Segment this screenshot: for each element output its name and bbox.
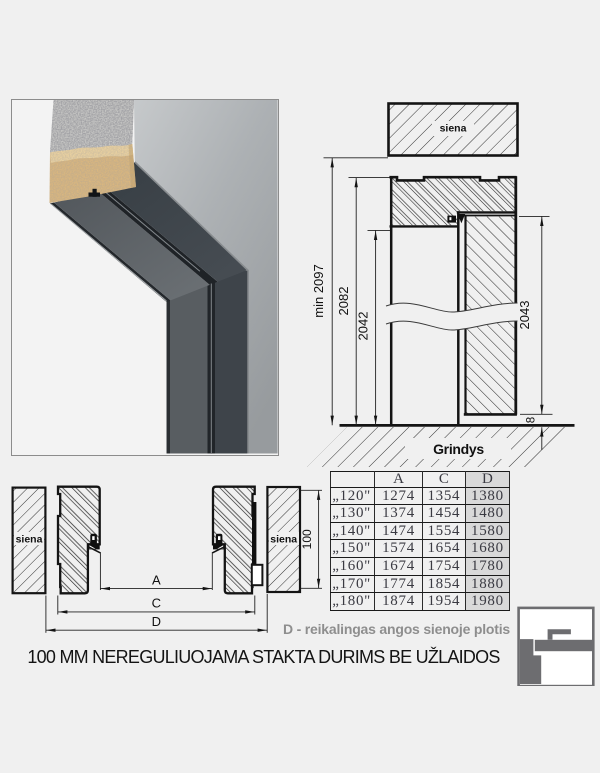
svg-text:C: C — [152, 596, 161, 611]
svg-text:100: 100 — [300, 529, 314, 549]
svg-text:siena: siena — [16, 534, 43, 546]
svg-text:8: 8 — [526, 417, 538, 423]
svg-text:2043: 2043 — [517, 301, 532, 330]
svg-text:min 2097: min 2097 — [311, 264, 326, 317]
svg-text:siena: siena — [270, 534, 297, 546]
svg-text:A: A — [152, 572, 161, 587]
svg-text:D: D — [152, 614, 161, 629]
svg-text:2082: 2082 — [336, 287, 351, 316]
svg-text:siena: siena — [440, 123, 467, 135]
svg-text:Grindys: Grindys — [433, 441, 484, 457]
svg-text:2042: 2042 — [356, 312, 371, 341]
